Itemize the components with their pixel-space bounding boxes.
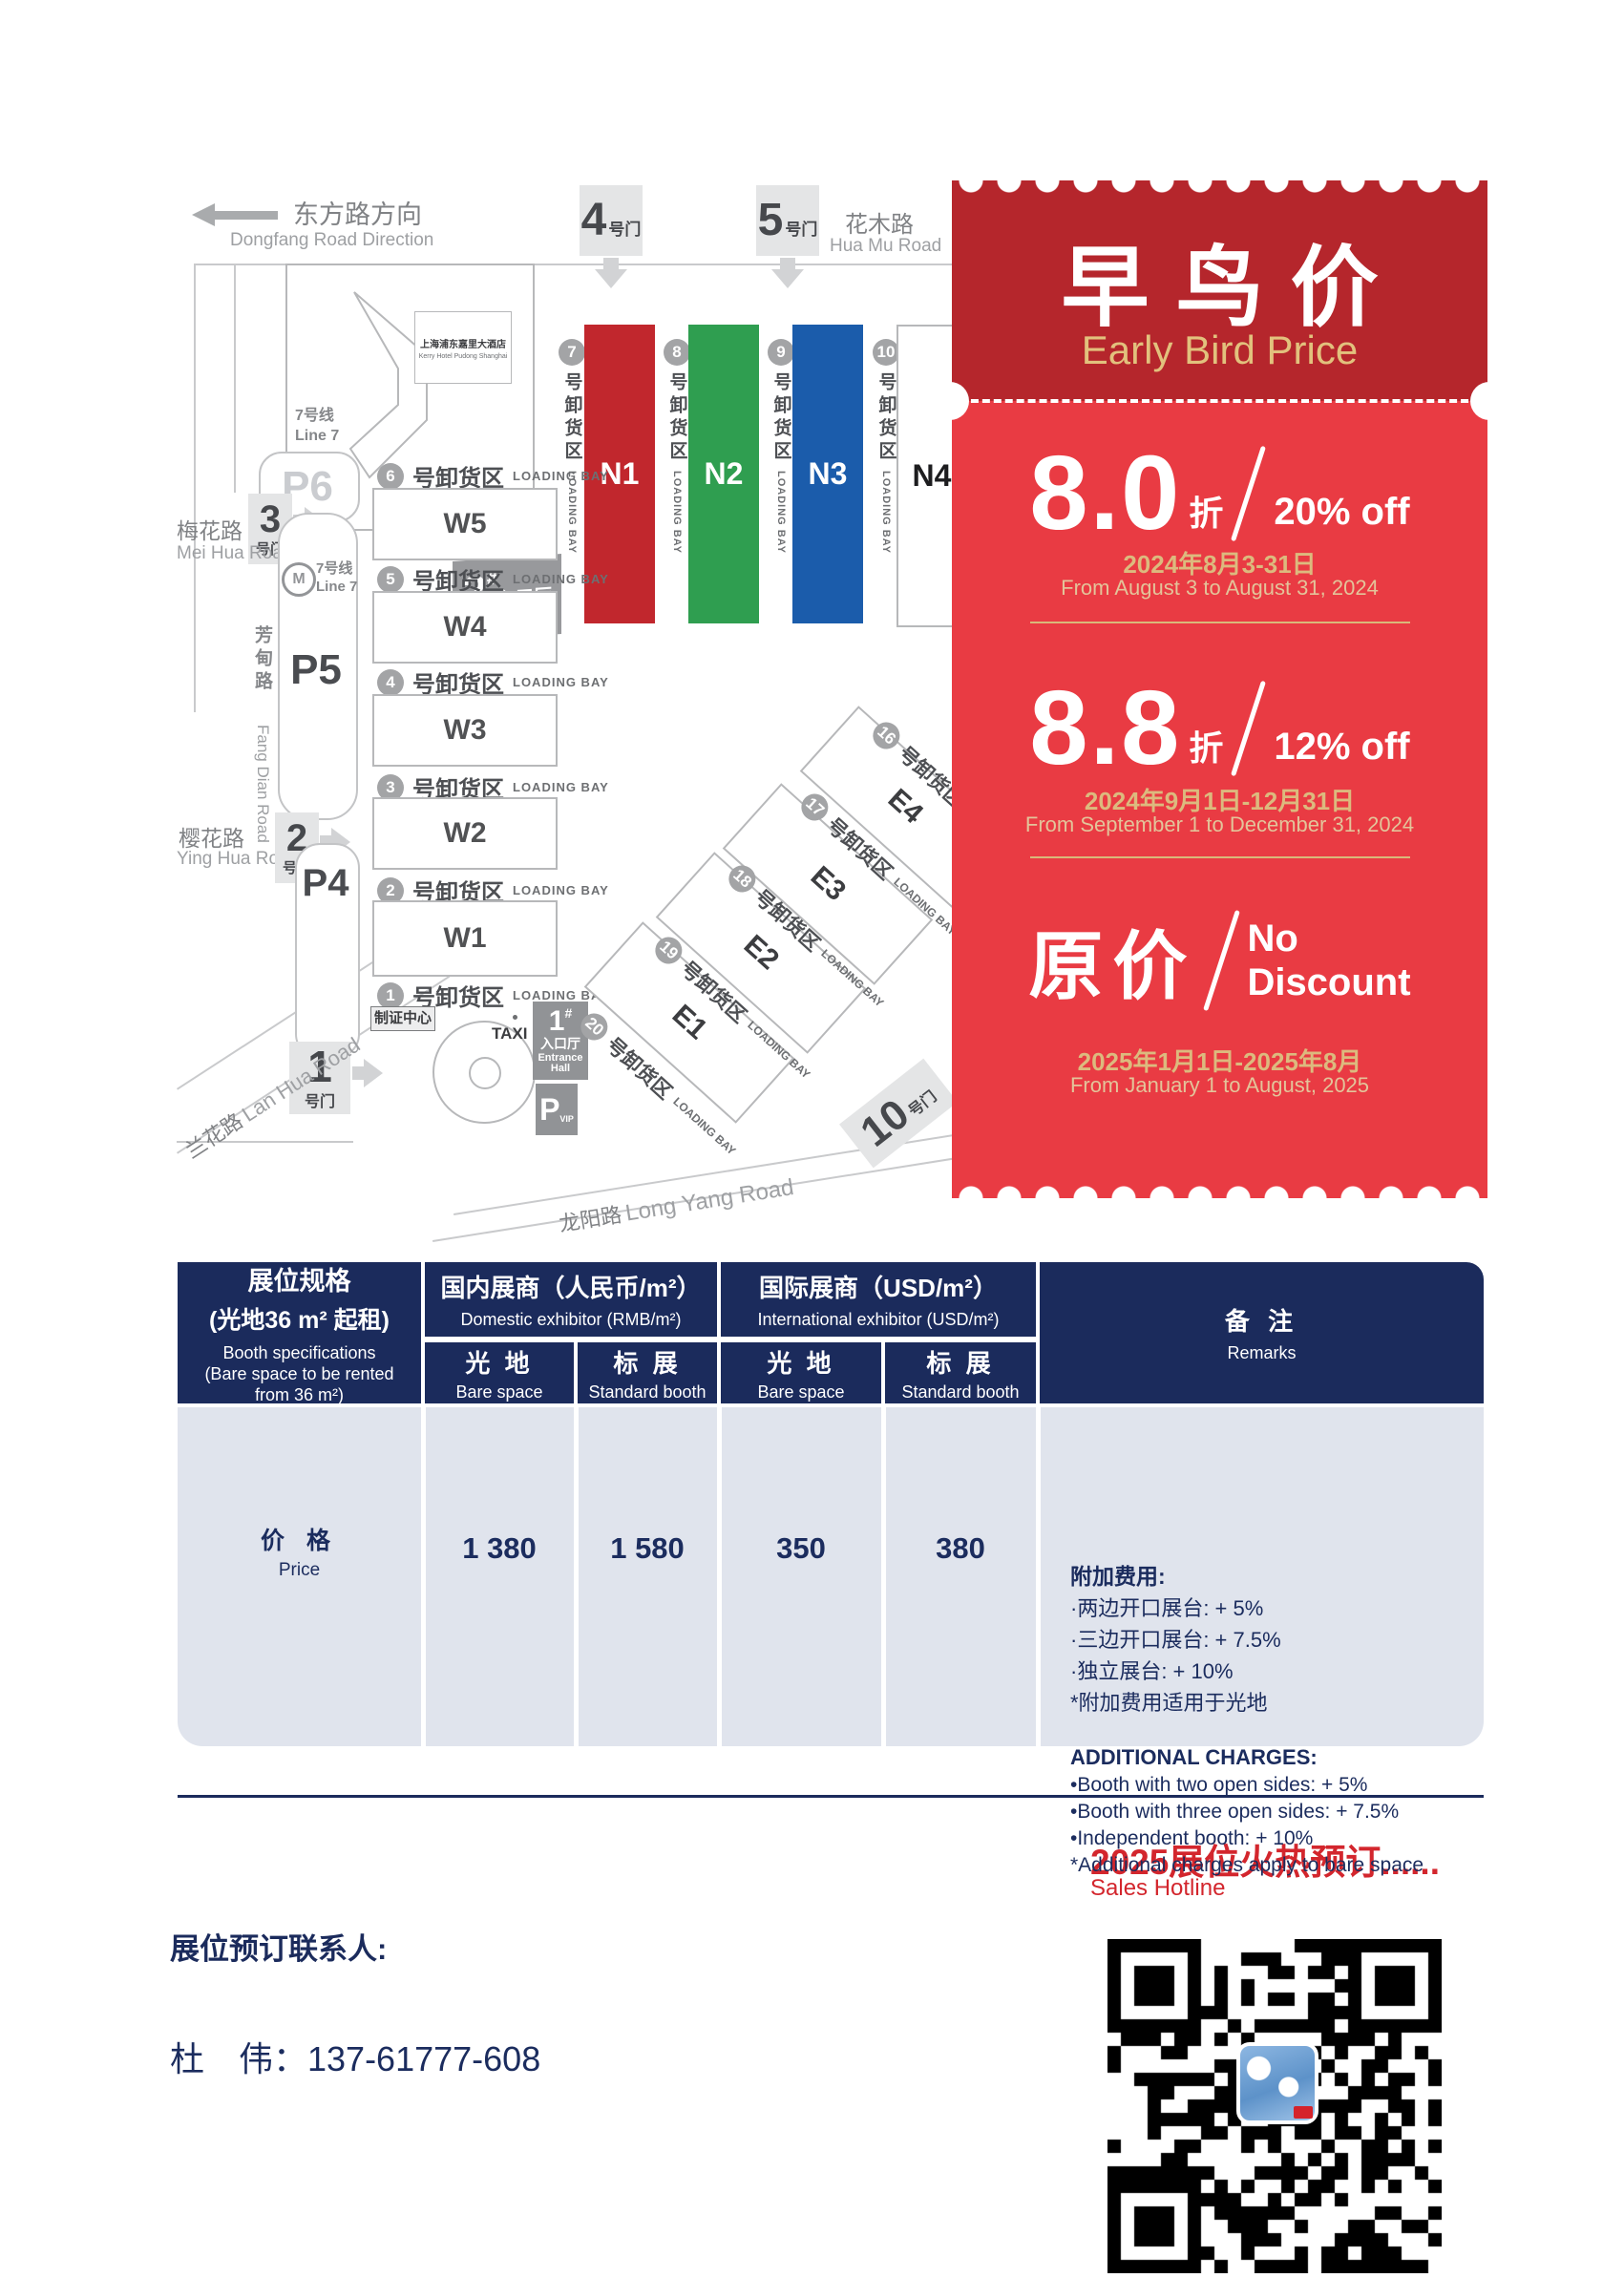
roundabout-inner (469, 1057, 501, 1089)
taxi-dot (513, 1015, 517, 1020)
badge-center: 制证中心 (370, 1006, 435, 1031)
meihua-road-en: Mei Hua Road (177, 543, 292, 564)
parking-p5: P5 (278, 646, 354, 694)
gate-4-suffix: 号门 (608, 216, 641, 240)
hotel-name-zh: 上海浦东嘉里大酒店 (420, 336, 506, 350)
header-domestic-bare: 光 地 Bare space (425, 1342, 574, 1403)
coupon-divider-1 (1030, 622, 1410, 623)
header-international-standard: 标 展 Standard booth (885, 1342, 1036, 1403)
header-international-group: 国际展商（USD/m²） International exhibitor (US… (721, 1262, 1036, 1337)
col-sep-2 (574, 1407, 579, 1746)
price-table: 展位规格 (光地36 m² 起租) Booth specifications (… (178, 1262, 1484, 1746)
remarks-en-title: ADDITIONAL CHARGES: (1070, 1743, 1476, 1772)
tier-1-date-en: From August 3 to August 31, 2024 (952, 576, 1487, 601)
coupon-divider-2 (1030, 856, 1410, 858)
hotline-subtitle: Sales Hotline (1090, 1875, 1225, 1902)
hall-w5: W5 (372, 488, 558, 560)
hall-n3: N3 (792, 325, 863, 623)
vip-parking: P VIP (536, 1084, 578, 1135)
tier-3-off-line2: Discount (1247, 960, 1410, 1004)
header-international-bare: 光 地 Bare space (721, 1342, 881, 1403)
tier-2-off: 12% off (1274, 726, 1409, 769)
entrance-hall-1: 1# 入口厅 Entrance Hall (533, 1002, 588, 1080)
early-bird-coupon: 早鸟价 Early Bird Price 8.0 折 20% off 2024年… (952, 180, 1487, 1198)
gate-5-suffix: 号门 (785, 216, 817, 240)
hall-w1: W1 (372, 900, 558, 977)
booth-spec-en2: (Bare space to be rented (204, 1364, 393, 1384)
dongfang-road-en: Dongfang Road Direction (230, 230, 433, 251)
road-left-outer (194, 264, 196, 712)
yinghua-road-zh: 樱花路 (179, 820, 244, 853)
vip-parking-vip: VIP (559, 1114, 574, 1124)
metro-logo-left-icon: M (282, 562, 316, 597)
venue-map: 东方路方向 Dongfang Road Direction 4 号门 5 号门 … (177, 177, 961, 1208)
longyang-road: 龙阳路 Long Yang Road (557, 1171, 795, 1237)
loading-bay-7: 7 号卸货区 LOADING BAY (557, 339, 587, 554)
price-international-standard: 380 (936, 1531, 985, 1566)
parking-p4: P4 (295, 862, 356, 905)
tier-2-discount: 8.8 (1029, 676, 1181, 781)
tier-2-unit: 折 (1189, 721, 1223, 770)
tier-2-date-en: From September 1 to December 31, 2024 (952, 812, 1487, 837)
tier-3-off-line1: No (1247, 917, 1410, 960)
hotel-label-box: 上海浦东嘉里大酒店 Kerry Hotel Pudong Shanghai (414, 311, 512, 384)
col-sep-5 (1036, 1407, 1041, 1746)
tier-1-unit: 折 (1189, 486, 1223, 536)
contact-label: 展位预订联系人: (170, 1925, 387, 1968)
gate-5-arrow-icon (771, 258, 804, 288)
price-label: 价 格 Price (178, 1522, 421, 1581)
coupon-notch-left (931, 382, 969, 420)
booth-spec-zh2: (光地36 m² 起租) (209, 1301, 390, 1336)
flag-icon (1294, 2106, 1313, 2119)
coupon-perforation (960, 399, 1480, 403)
price-label-zh: 价 格 (178, 1522, 421, 1556)
coupon-scallop-bottom (952, 1175, 1487, 1198)
remarks-zh-item: *附加费用适用于光地 (1070, 1687, 1476, 1719)
metro-line7-left: 7号线Line 7 (316, 560, 357, 597)
gate-1-arrow-icon (352, 1059, 383, 1087)
gate-10: 10 号门 (839, 1059, 958, 1169)
tier-2-slash-icon (1231, 681, 1266, 776)
huamu-road-en: Hua Mu Road (830, 236, 941, 257)
hall-w2: W2 (372, 797, 558, 870)
header-domestic-standard: 标 展 Standard booth (578, 1342, 717, 1403)
gate-5: 5 号门 (756, 185, 819, 256)
hall-n2: N2 (688, 325, 759, 623)
entrance-1-number: 1 (549, 1005, 565, 1037)
gate-4-number: 4 (581, 198, 607, 243)
col-sep-3 (717, 1407, 722, 1746)
huamu-road-zh: 花木路 (845, 205, 914, 239)
metro-line7-hotel: 7号线Line 7 (295, 407, 339, 447)
meihua-road-zh: 梅花路 (177, 513, 243, 545)
remarks-zh-item: ·三边开口展台: + 7.5% (1070, 1624, 1476, 1656)
taxi-label: TAXI (492, 1024, 527, 1044)
longyang-road-zh: 龙阳路 (558, 1203, 623, 1236)
hall-w3: W3 (372, 694, 558, 767)
col-sep-1 (421, 1407, 426, 1746)
road-left-inner (234, 264, 236, 493)
tier-3-label: 原价 (1028, 907, 1196, 1014)
coupon-title-zh: 早鸟价 (952, 217, 1487, 344)
coupon-title-en: Early Bird Price (952, 327, 1487, 373)
tier-3-off: No Discount (1247, 917, 1410, 1004)
price-row: 价 格 Price 1 380 1 580 350 380 附加费用: ·两边开… (178, 1407, 1484, 1746)
remarks-zh-item: ·两边开口展台: + 5% (1070, 1592, 1476, 1624)
fangdian-road-en: Fang Dian Road (253, 725, 272, 843)
tier-3-slash-icon (1204, 910, 1241, 1011)
remarks-zh-title: 附加费用: (1070, 1560, 1476, 1592)
coupon-notch-right (1470, 382, 1508, 420)
entrance-1-en2: Hall (551, 1064, 570, 1075)
coupon-scallop-top (952, 180, 1487, 203)
tier-1-discount: 8.0 (1029, 441, 1181, 546)
price-international-bare: 350 (776, 1531, 826, 1566)
remarks-en-item: *Additional charges apply to bare space (1070, 1852, 1476, 1879)
remarks-en-item: •Independent booth: + 10% (1070, 1825, 1476, 1852)
tier-1: 8.0 折 20% off (952, 440, 1487, 547)
dongfang-arrow-icon (192, 203, 278, 226)
tier-2: 8.8 折 12% off (952, 675, 1487, 782)
remarks-en-item: •Booth with three open sides: + 7.5% (1070, 1799, 1476, 1825)
remarks-en-item: •Booth with two open sides: + 5% (1070, 1772, 1476, 1799)
booth-spec-en3: from 36 m²) (255, 1385, 344, 1405)
price-domestic-bare: 1 380 (462, 1531, 537, 1566)
gate-4: 4 号门 (580, 185, 643, 256)
flyer-page: { "colors": { "navy": "#1b2b5c", "coupon… (0, 0, 1624, 2278)
hall-w4: W4 (372, 591, 558, 664)
lanhua-road-zh: 兰花路 (181, 1108, 247, 1163)
wechat-qr-code (1107, 1939, 1442, 2273)
price-label-en: Price (178, 1560, 421, 1581)
contact-phone: 杜 伟：137-61777-608 (170, 2032, 540, 2081)
header-booth-spec: 展位规格 (光地36 m² 起租) Booth specifications (… (178, 1262, 421, 1403)
booth-spec-zh1: 展位规格 (248, 1260, 351, 1297)
booth-spec-en1: Booth specifications (222, 1343, 375, 1363)
tier-1-off: 20% off (1274, 491, 1409, 534)
remarks-zh-item: ·独立展台: + 10% (1070, 1656, 1476, 1687)
tier-1-slash-icon (1231, 446, 1266, 541)
header-domestic-group: 国内展商（人民币/m²） Domestic exhibitor (RMB/m²) (425, 1262, 717, 1337)
header-remarks: 备 注 Remarks (1040, 1262, 1484, 1403)
gate-5-number: 5 (758, 198, 784, 243)
entrance-1-zh: 入口厅 (540, 1037, 580, 1051)
hotel-name-en: Kerry Hotel Pudong Shanghai (419, 353, 508, 360)
col-sep-4 (881, 1407, 886, 1746)
tier-3-date-en: From January 1 to August, 2025 (952, 1073, 1487, 1098)
gate-4-arrow-icon (595, 258, 627, 288)
price-domestic-standard: 1 580 (610, 1531, 685, 1566)
vip-parking-p: P (539, 1092, 559, 1128)
remarks-content: 附加费用: ·两边开口展台: + 5% ·三边开口展台: + 7.5% ·独立展… (1070, 1560, 1476, 1879)
fangdian-road-zh: 芳甸路 (249, 625, 275, 694)
entrance-1-hash: # (564, 1005, 572, 1021)
wechat-avatar (1236, 2042, 1318, 2124)
dongfang-road-zh: 东方路方向 (293, 194, 422, 231)
tier-3: 原价 No Discount (952, 908, 1487, 1013)
